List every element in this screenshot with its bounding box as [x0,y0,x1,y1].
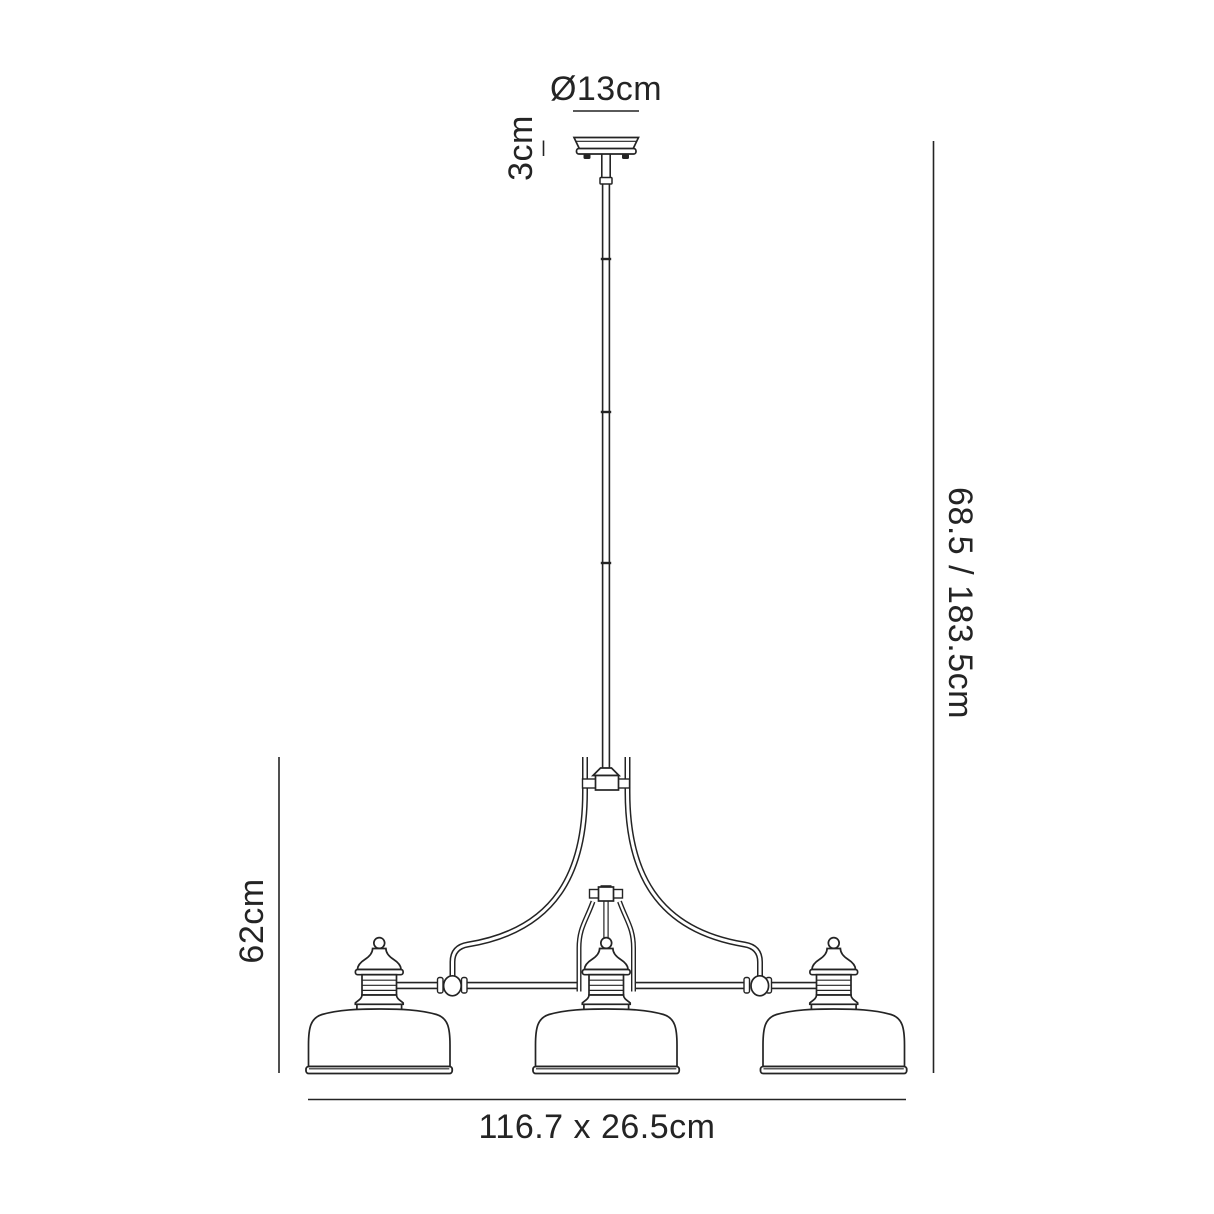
ceiling-canopy [574,138,639,160]
ball-joint-right [744,976,772,996]
pendant-light-dimension-drawing: Ø13cm 3cm 68.5 / 183.5cm 62cm 116.7 x 26… [0,0,1214,1214]
label-width-depth: 116.7 x 26.5cm [479,1108,716,1146]
lamp-holder-center [582,938,630,1010]
label-overall-height-range: 68.5 / 183.5cm [941,487,979,719]
curved-arm-right [628,757,761,977]
lamp-holder-left [355,938,403,1010]
coupling-tab-right [613,890,623,899]
frame-hub [583,768,630,790]
curved-arm-left [453,757,586,977]
ball-joint-left [438,976,468,996]
canopy-foot-right [622,154,629,159]
dimension-diagram-page: Ø13cm 3cm 68.5 / 183.5cm 62cm 116.7 x 26… [0,0,1214,1214]
glass-shade-right [761,1009,907,1074]
label-canopy-height: 3cm [502,115,540,181]
glass-shade-center [533,1009,679,1074]
glass-shade-left [306,1009,452,1074]
stem-coupling [590,886,623,944]
label-body-height: 62cm [233,878,271,963]
coupling-tab-left [590,890,600,899]
canopy-foot-left [584,154,591,159]
suspension-rod [600,154,612,768]
lamp-holder-right [810,938,858,1010]
hub-pin-left [583,779,597,788]
rod-coupling-top [600,178,612,185]
label-canopy-diameter: Ø13cm [550,70,662,108]
